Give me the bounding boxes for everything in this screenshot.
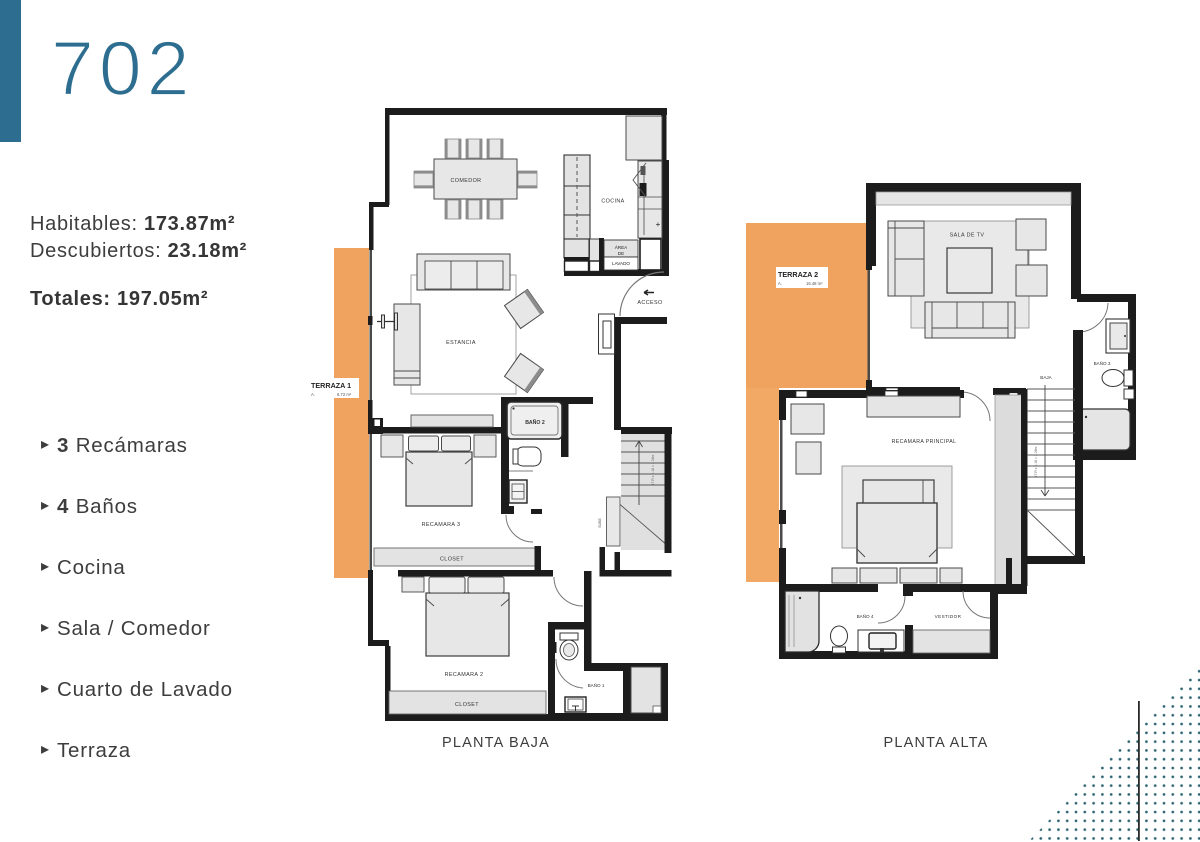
- svg-text:TERRAZA 1: TERRAZA 1: [311, 381, 351, 390]
- svg-text:17 R x 0.18 = 3.06m: 17 R x 0.18 = 3.06m: [651, 455, 655, 486]
- svg-text:DE: DE: [618, 251, 624, 256]
- svg-text:BAÑO 3: BAÑO 3: [1094, 360, 1111, 366]
- svg-text:CLOSET: CLOSET: [455, 702, 479, 708]
- svg-text:BAÑO 4: BAÑO 4: [857, 613, 874, 619]
- svg-text:COMEDOR: COMEDOR: [451, 178, 482, 184]
- svg-text:+: +: [656, 220, 661, 229]
- svg-text:ACCESO: ACCESO: [637, 300, 662, 306]
- svg-text:ESTANCIA: ESTANCIA: [446, 340, 476, 346]
- svg-text:TERRAZA 2: TERRAZA 2: [778, 270, 818, 279]
- svg-text:SALA DE TV: SALA DE TV: [950, 233, 985, 239]
- svg-text:SUBE: SUBE: [598, 518, 602, 528]
- svg-text:RECAMARA 3: RECAMARA 3: [422, 522, 461, 528]
- svg-text:A.: A.: [311, 392, 315, 397]
- svg-text:6.72 m²: 6.72 m²: [337, 392, 352, 397]
- svg-text:COCINA: COCINA: [601, 199, 624, 205]
- svg-text:BAÑO 1: BAÑO 1: [588, 682, 605, 688]
- svg-text:A.: A.: [778, 281, 782, 286]
- svg-text:BAÑO 2: BAÑO 2: [525, 419, 545, 426]
- svg-text:17 R x 0.18 = 3.06m: 17 R x 0.18 = 3.06m: [1034, 447, 1038, 478]
- svg-text:CLOSET: CLOSET: [440, 557, 464, 563]
- svg-text:RECAMARA 2: RECAMARA 2: [445, 672, 484, 678]
- svg-text:PLANTA ALTA: PLANTA ALTA: [883, 735, 988, 751]
- svg-text:VESTIDOR: VESTIDOR: [935, 614, 962, 619]
- svg-text:LAVADO: LAVADO: [612, 261, 630, 266]
- svg-text:RECAMARA PRINCIPAL: RECAMARA PRINCIPAL: [892, 439, 957, 445]
- svg-text:ÁREA: ÁREA: [615, 244, 628, 250]
- svg-text:BAJA: BAJA: [1040, 375, 1052, 380]
- svg-text:16.48 m²: 16.48 m²: [806, 281, 823, 286]
- svg-text:PLANTA BAJA: PLANTA BAJA: [442, 735, 550, 751]
